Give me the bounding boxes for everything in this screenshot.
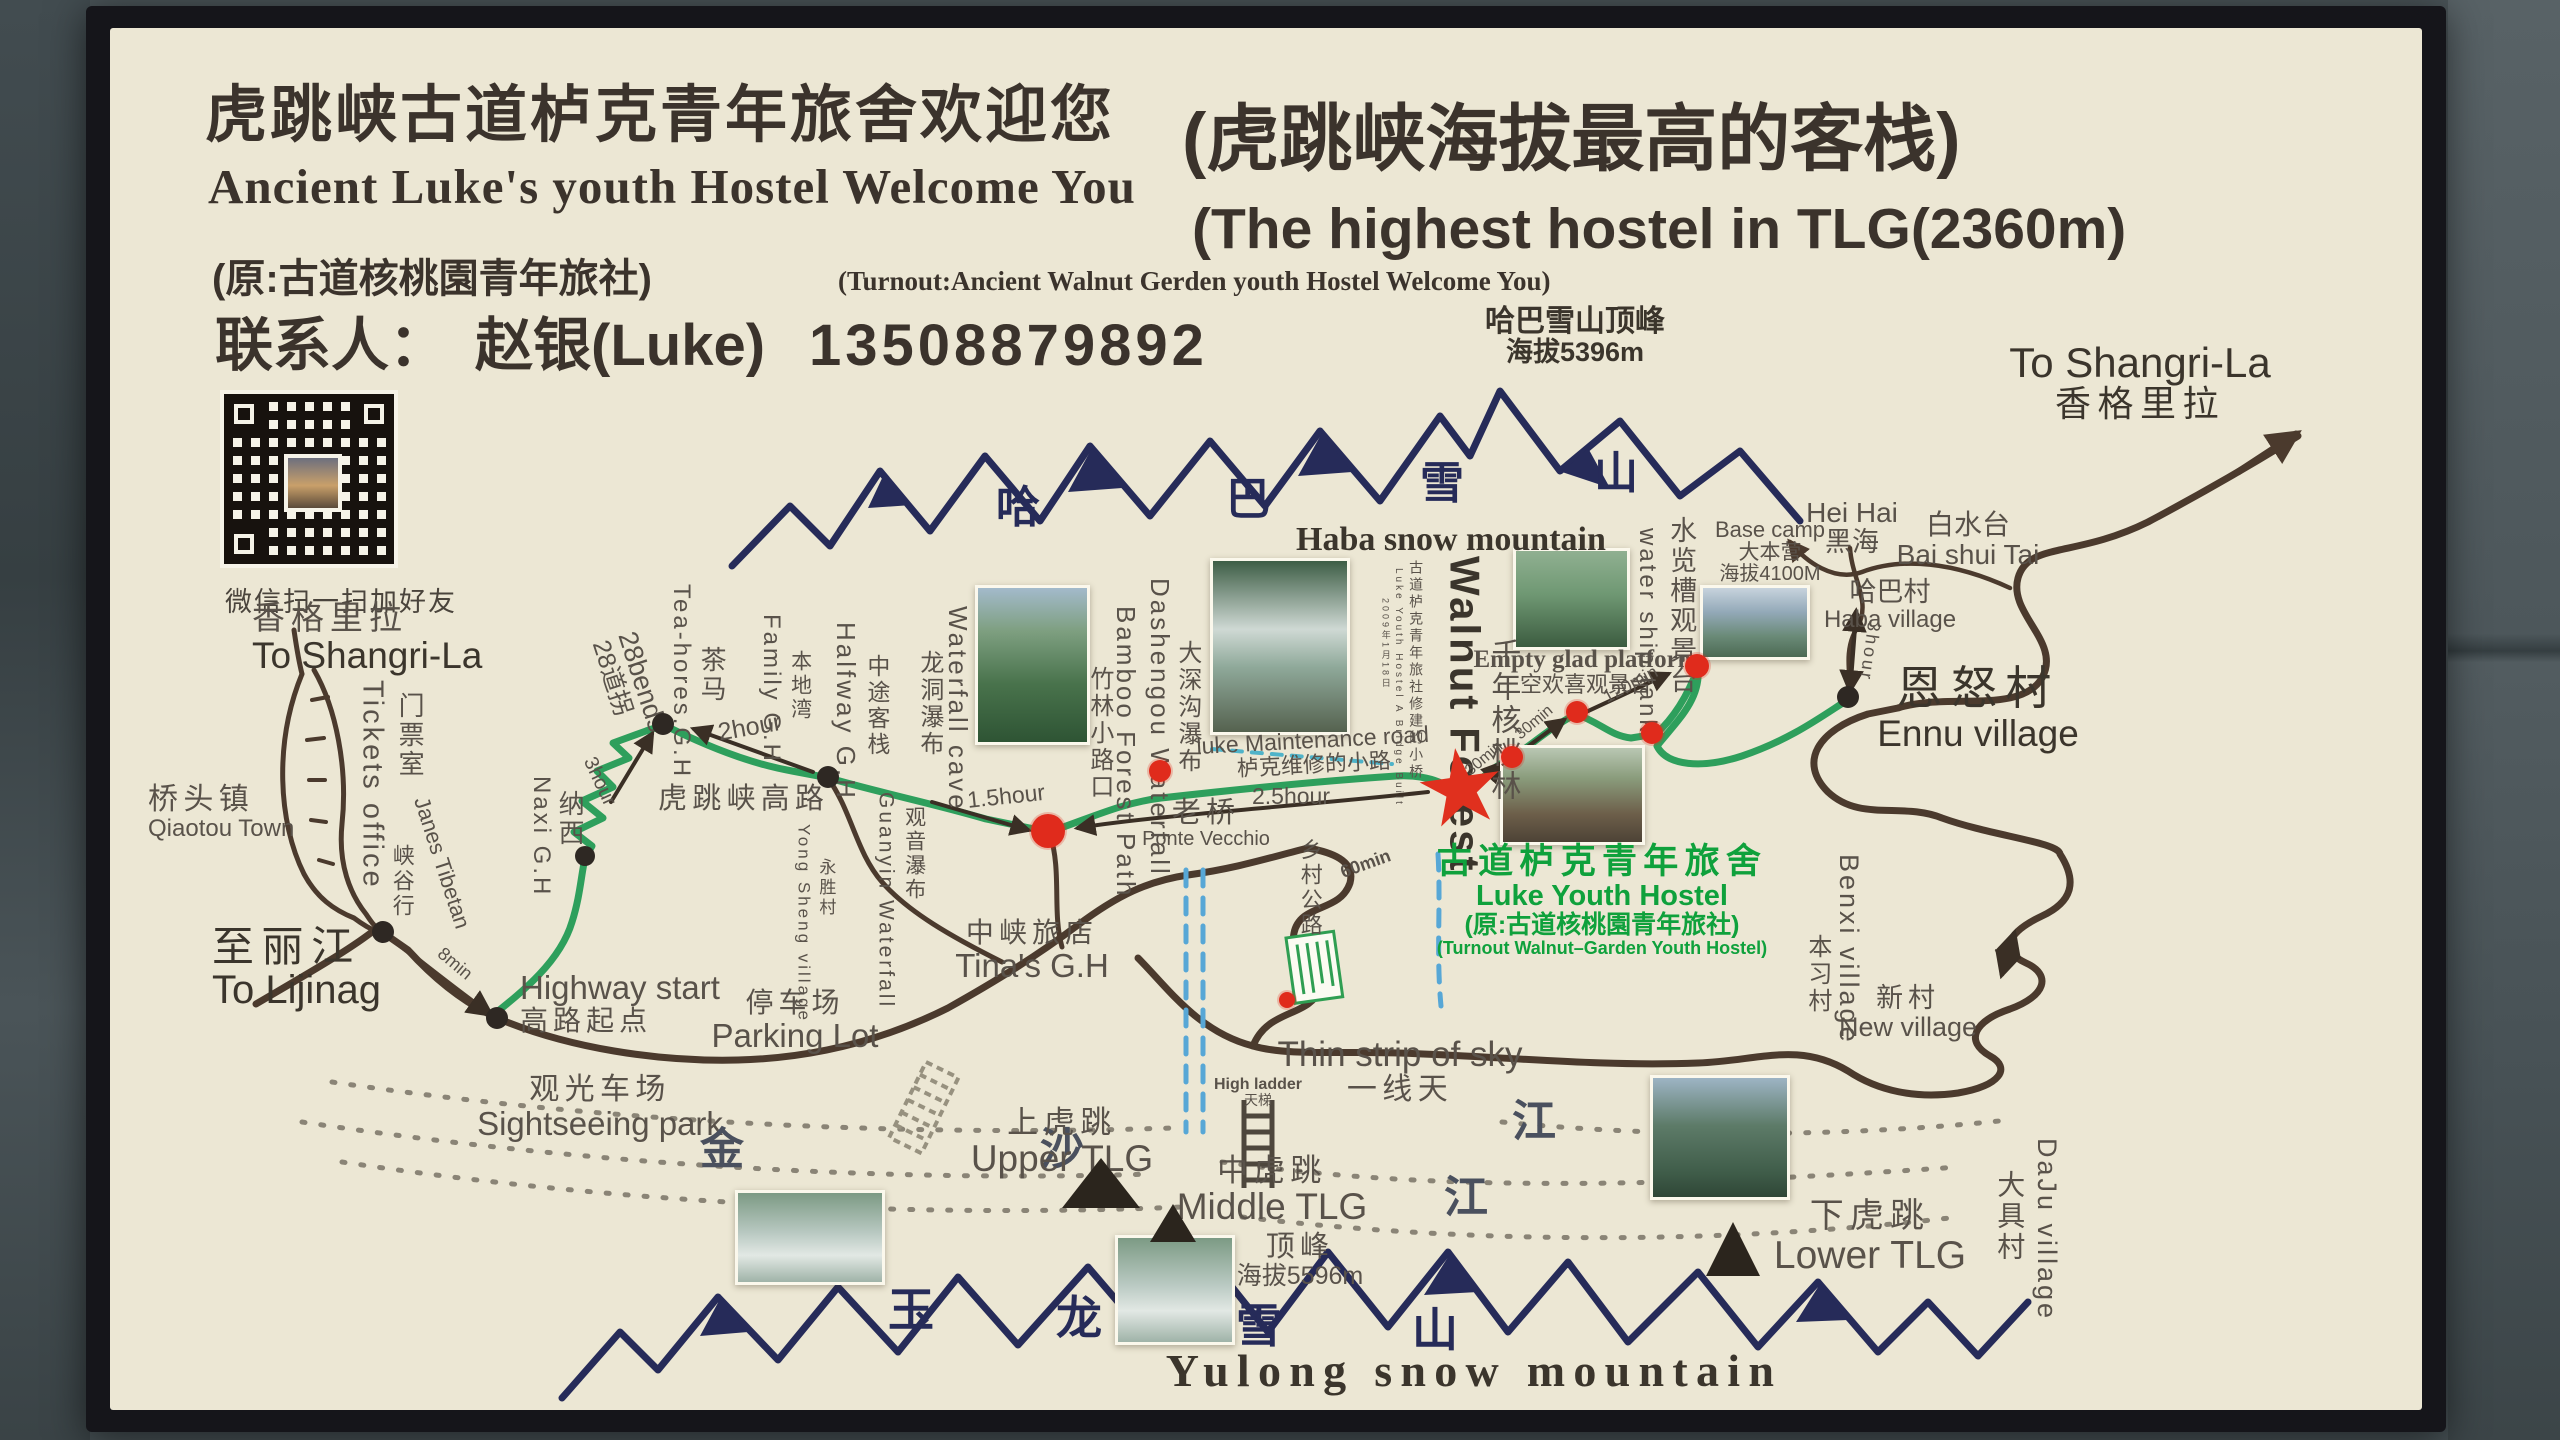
photo-bridge xyxy=(1210,558,1350,735)
photo-hikers xyxy=(1513,548,1630,650)
sign-subtitle-en: Ancient Luke's youth Hostel Welcome You xyxy=(208,158,1136,215)
contact-name: 赵银(Luke) xyxy=(475,313,765,378)
poi-dot-water-ship xyxy=(1685,654,1709,678)
contact-phone: 13508879892 xyxy=(809,313,1208,378)
qr-center-photo xyxy=(284,454,342,512)
empty-glad-label: Empty glad platform空欢喜观景台 xyxy=(1474,646,1699,697)
waterfall-cave-label-zh: 龙洞瀑布 xyxy=(916,650,942,758)
country-road-label: 乡村公路 xyxy=(1298,838,1322,938)
jinsha-jin: 金 xyxy=(700,1126,744,1174)
tickets-office-label-en: Tickets office xyxy=(356,680,387,890)
sign-title-zh: 虎跳峡古道栌克青年旅舍欢迎您 xyxy=(205,64,1115,154)
sign-photo-stage: 虎跳峡古道栌克青年旅舍欢迎您 (虎跳峡海拔最高的客栈) Ancient Luke… xyxy=(0,0,2560,1440)
stone-wall-left xyxy=(0,0,90,1440)
poi-dot-trail-junction xyxy=(1031,814,1065,848)
poi-dot-walnut-2 xyxy=(1566,701,1588,723)
laoqiao-label: 老桥Ponte Vecchio xyxy=(1142,798,1270,851)
waterfall-cave-label-en: Waterfall cave xyxy=(944,606,972,812)
yongsheng-label-zh: 永胜村 xyxy=(816,858,834,918)
naxi-label-en: Naxi G.H xyxy=(528,776,554,897)
naxi-label-zh: 纳西 xyxy=(556,790,584,848)
photo-lower-gorge xyxy=(1650,1075,1790,1200)
hostel-star-icon: ★ xyxy=(1407,730,1514,846)
poi-dot-bamboo xyxy=(1149,760,1171,782)
junction-dot-halfway xyxy=(817,766,839,788)
qr-finder-icon xyxy=(354,394,394,434)
haba-char-2: 巴 xyxy=(1226,476,1270,524)
junction-dot-janes xyxy=(372,921,394,943)
peak-middle-tlg xyxy=(1150,1204,1196,1242)
haba-village-label: 哈巴村Haba village xyxy=(1824,578,1956,633)
sightseeing-label: 观光车场Sightseeing park xyxy=(477,1074,723,1142)
halfway-label-zh: 中途客栈 xyxy=(864,654,889,758)
to-shangrila-left-label: 香格里拉To Shangri-La xyxy=(252,600,482,676)
sign-former-en: (Turnout:Ancient Walnut Gerden youth Hos… xyxy=(838,266,1551,297)
junction-dot-tea-horse xyxy=(652,713,674,735)
bamboo-path-label-zh: 竹林小路口 xyxy=(1086,666,1112,801)
yulong-char-1: 玉 xyxy=(888,1286,934,1336)
photo-upper-rapids xyxy=(735,1190,885,1285)
qiaotou-label: 桥头镇Qiaotou Town xyxy=(148,784,294,842)
peak-upper-tlg xyxy=(1062,1158,1140,1208)
contact-label: 联系人： xyxy=(215,313,447,378)
lower-tlg-label: 下虎跳Lower TLG xyxy=(1774,1198,1966,1277)
contact-line: 联系人：赵银(Luke)13508879892 xyxy=(215,298,1208,382)
highway-start-label: Highway start高路起点 xyxy=(520,970,720,1036)
daju-label-en: DaJu village xyxy=(2032,1138,2061,1321)
tea-horse-label-en: Tea-hores.G.H xyxy=(668,584,694,779)
yulong-char-2: 龙 xyxy=(1056,1294,1102,1344)
junction-dot-ennu xyxy=(1837,686,1859,708)
parking-label: 停车场Parking Lot xyxy=(712,988,879,1054)
sign-former-zh: (原:古道核桃園青年旅社) xyxy=(212,246,652,304)
qr-finder-icon xyxy=(224,524,264,564)
junction-dot-highway-start xyxy=(486,1007,508,1029)
hostel-green-label: 古道栌克青年旅舍Luke Youth Hostel(原:古道核桃園青年旅社)(T… xyxy=(1437,843,1767,959)
photo-middle-rapids xyxy=(1115,1235,1235,1345)
photo-valley xyxy=(1700,585,1810,660)
guanyin-label-en: Guanyin Waterfall xyxy=(874,792,897,1009)
photo-gorge xyxy=(975,585,1090,745)
family-label-zh: 本地湾 xyxy=(788,650,811,722)
peak-haba-label: 哈巴雪山顶峰海拔5396m xyxy=(1485,306,1665,368)
haba-snow-mountain-label: Haba snow mountain xyxy=(1296,522,1606,559)
summit-label: 顶峰海拔5596m xyxy=(1237,1232,1363,1290)
poi-dot-road-sign xyxy=(1279,992,1295,1008)
middle-tlg-label: 中虎跳Middle TLG xyxy=(1177,1154,1368,1227)
high-road-label: 虎跳峡高路 xyxy=(658,784,829,815)
peak-lower-tlg xyxy=(1706,1222,1760,1276)
yulong-en-label: Yulong snow mountain xyxy=(1166,1346,1782,1396)
junction-dot-naxi xyxy=(575,846,595,866)
ennu-village-label: 恩怒村Ennu village xyxy=(1877,664,2079,754)
benxi-label-zh: 本习村 xyxy=(1804,934,1830,1015)
bai-shui-tai-label: 白水台Bai shui Tai xyxy=(1897,510,2040,570)
to-lijinag-label: 至丽江To Lijinag xyxy=(212,924,381,1013)
water-ship-tank-label-en: water ship tank xyxy=(1634,528,1660,734)
bridge-caption-date: 2009年1月18日 xyxy=(1380,598,1390,690)
high-ladder-label: High ladder天梯 xyxy=(1214,1076,1302,1108)
qr-finder-icon xyxy=(224,394,264,434)
sign-highest-en: (The highest hostel in TLG(2360m) xyxy=(1192,196,2126,262)
thin-strip-label: Thin strip of sky一线天 xyxy=(1277,1036,1522,1106)
daju-label-zh: 大具村 xyxy=(1994,1170,2024,1263)
to-shangrila-top-label: To Shangri-La香格里拉 xyxy=(2009,340,2271,424)
sign-title-zh-paren: (虎跳峡海拔最高的客栈) xyxy=(1182,80,1961,186)
base-camp-label: Base camp大本营海拔4100M xyxy=(1715,518,1825,586)
bamboo-path-label-en: Bamboo Forest Path xyxy=(1112,606,1140,898)
tea-horse-label-zh: 茶马 xyxy=(698,646,726,704)
haba-char-3: 雪 xyxy=(1420,460,1464,508)
haba-char-1: 哈 xyxy=(996,484,1040,532)
guanyin-label-zh: 观音瀑布 xyxy=(902,806,925,902)
poi-dot-walnut-3 xyxy=(1641,722,1663,744)
haba-char-4: 山 xyxy=(1594,450,1638,498)
new-village-label: 新村New village xyxy=(1839,984,1977,1042)
gorge-walk-label-zh: 峡谷行 xyxy=(390,844,414,919)
family-label-en: Family G.H xyxy=(758,614,784,764)
tickets-office-label-zh: 门票室 xyxy=(396,692,424,779)
tinas-label: 中峡旅店Tina's G.H xyxy=(955,918,1109,984)
stone-wall-right xyxy=(2448,0,2560,1440)
jinsha-jiang-2: 江 xyxy=(1444,1174,1488,1222)
wechat-qr-code-icon xyxy=(220,390,398,568)
